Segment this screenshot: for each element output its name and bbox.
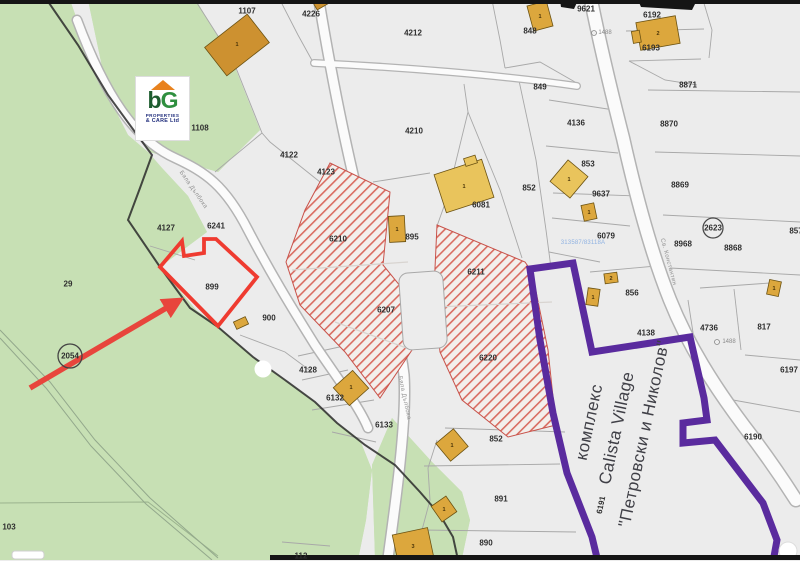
lamp-marker xyxy=(592,31,597,36)
cadastral-map-page: { "map": { "watermark_logo": { "letter_b… xyxy=(0,0,800,560)
reference-number: 313587/83118А xyxy=(561,240,606,246)
logo-letter-g: G xyxy=(161,87,178,113)
logo-line2: & CARE Ltd xyxy=(136,118,189,124)
bg-properties-logo: bG PROPERTIES & CARE Ltd xyxy=(136,77,189,140)
logo-letters: bG xyxy=(136,90,189,112)
logo-letter-b: b xyxy=(148,87,161,113)
cadastral-map: #g1,#g2,#g3{fill:#c7e0b4} xyxy=(0,0,800,560)
lamp-marker xyxy=(715,340,720,345)
rounded-parcel xyxy=(398,271,447,351)
white-dot-marker xyxy=(255,361,272,378)
bottom-left-ui-chip xyxy=(12,551,44,559)
